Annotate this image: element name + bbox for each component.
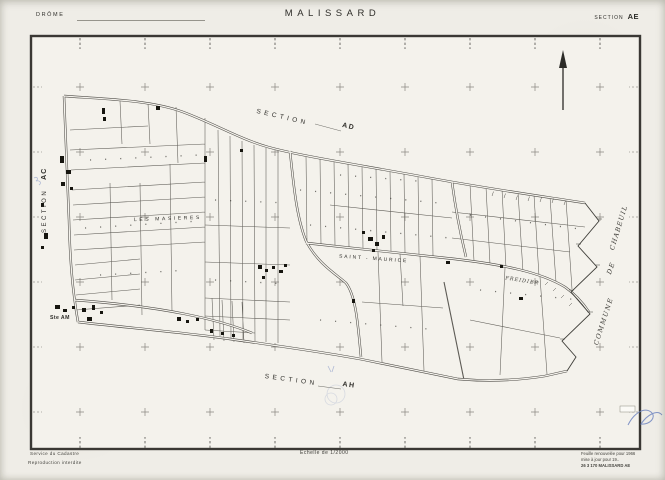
sheet-section-code: AE: [628, 12, 639, 21]
revision-note-line1: Feuille renouvelée pour 1966: [581, 451, 635, 457]
section-label-west: SECTIONAC: [41, 168, 48, 233]
commune-title: MALISSARD: [285, 9, 380, 19]
credit-line-1: Service du Cadastre: [30, 452, 79, 457]
sheet-section-word: SECTION: [594, 15, 623, 21]
revision-notes: Feuille renouvelée pour 1966 mise à jour…: [581, 451, 635, 468]
scale-label: Echelle de 1/2000: [300, 451, 349, 456]
map-canvas: [0, 0, 665, 480]
place-name-ste-am: Ste AM: [50, 316, 70, 321]
section-west-word: SECTION: [42, 189, 48, 233]
margin-label: [620, 406, 635, 412]
sheet-section-label: SECTIONAE: [594, 13, 639, 21]
department-label: DRÔME: [36, 13, 64, 19]
map-frame: [31, 36, 640, 449]
sheet-reference-code: 26 3 170 MALISSARD AE: [581, 463, 635, 469]
credit-line-2: Reproduction interdite: [28, 461, 82, 466]
department-underline: [77, 20, 205, 21]
section-west-code: AC: [41, 168, 48, 180]
cadastral-map-sheet: DRÔME MALISSARD SECTIONAE SECTIONAC SECT…: [0, 0, 665, 480]
